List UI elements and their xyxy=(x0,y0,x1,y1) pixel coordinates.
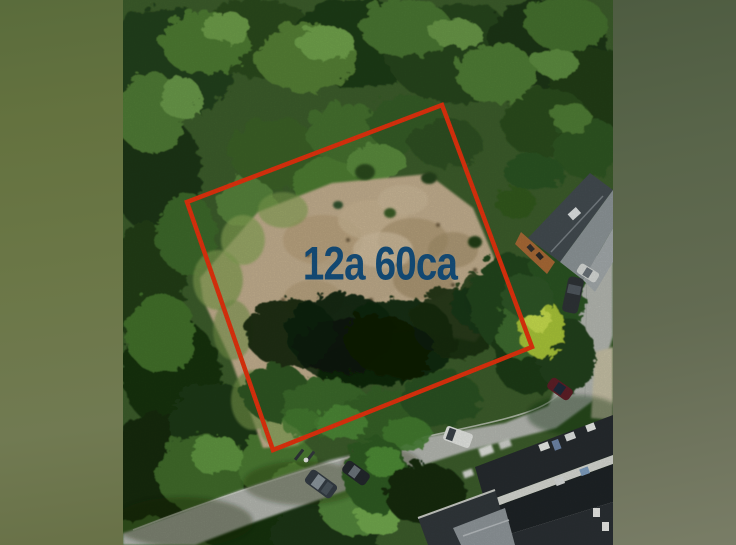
aerial-photo-svg: 12a 60ca xyxy=(123,0,613,545)
grain-overlay xyxy=(123,0,613,545)
listing-aerial-image: 12a 60ca xyxy=(0,0,736,545)
blurred-edge-band-left xyxy=(0,0,123,545)
aerial-photo: 12a 60ca xyxy=(123,0,613,545)
blurred-edge-band-right xyxy=(613,0,736,545)
